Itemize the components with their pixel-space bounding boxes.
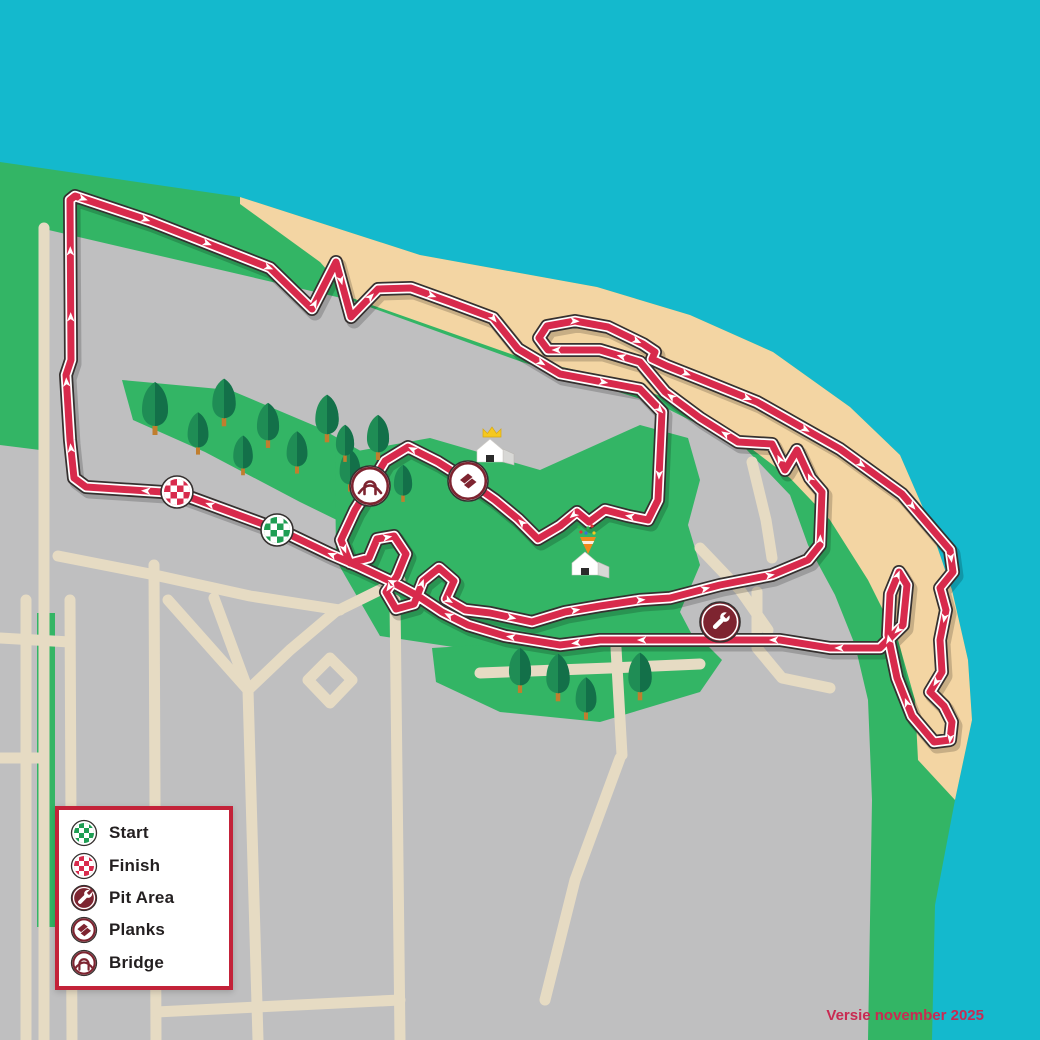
bridge-icon [72,950,97,975]
start-checker-icon [72,821,97,846]
legend-item-pit: Pit Area [69,883,219,913]
legend-label-bridge: Bridge [109,953,164,973]
legend-label-pit: Pit Area [109,888,174,908]
planks-icon [72,918,97,943]
planks-icon [69,915,99,945]
legend-item-start: Start [69,818,219,848]
finish-checker-icon [69,851,99,881]
legend-label-planks: Planks [109,920,165,940]
finish-marker [161,476,193,508]
legend: StartFinishPit AreaPlanksBridge [55,806,233,990]
legend-item-finish: Finish [69,851,219,881]
legend-label-start: Start [109,823,149,843]
legend-label-finish: Finish [109,856,160,876]
course-map-page: StartFinishPit AreaPlanksBridge Versie n… [0,0,1040,1040]
finish-checker-icon [72,853,97,878]
start-marker [261,514,293,546]
start-checker-icon [69,818,99,848]
pit-marker [700,602,740,642]
legend-item-planks: Planks [69,915,219,945]
planks-marker [448,461,488,501]
wrench-icon [72,885,97,910]
bridge-icon [69,948,99,978]
wrench-icon [69,883,99,913]
legend-item-bridge: Bridge [69,948,219,978]
bridge-marker [350,466,390,506]
version-label: Versie november 2025 [826,1007,984,1024]
